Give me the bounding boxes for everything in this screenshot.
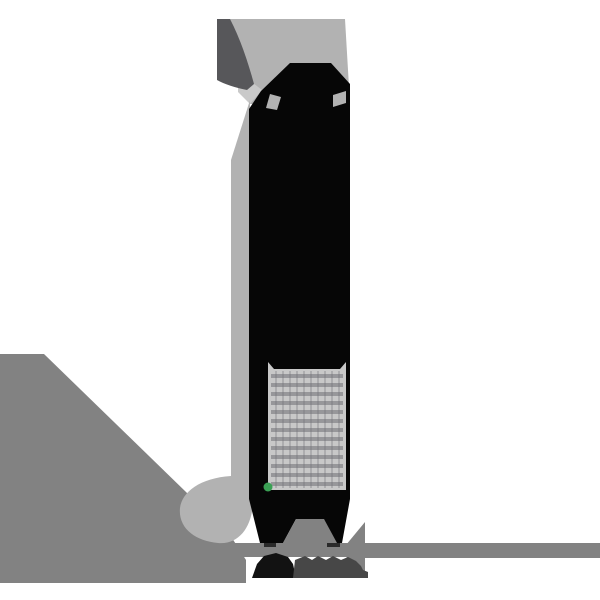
label-column — [303, 371, 305, 488]
ground-bar-right — [365, 543, 600, 558]
label-column — [331, 371, 333, 488]
label-block — [268, 362, 346, 490]
label-column — [275, 371, 277, 488]
label-column — [282, 371, 284, 488]
foot-contact-right — [327, 543, 340, 547]
foot-contact-left — [264, 543, 276, 547]
label-column — [296, 371, 298, 488]
scene-canvas — [0, 0, 600, 600]
posterized-scene-graphic — [0, 0, 600, 600]
label-column — [310, 371, 312, 488]
label-column — [324, 371, 326, 488]
green-dot — [264, 483, 273, 492]
light-ribbon-strip — [231, 100, 250, 478]
label-column — [289, 371, 291, 488]
label-column — [338, 371, 340, 488]
label-column — [317, 371, 319, 488]
